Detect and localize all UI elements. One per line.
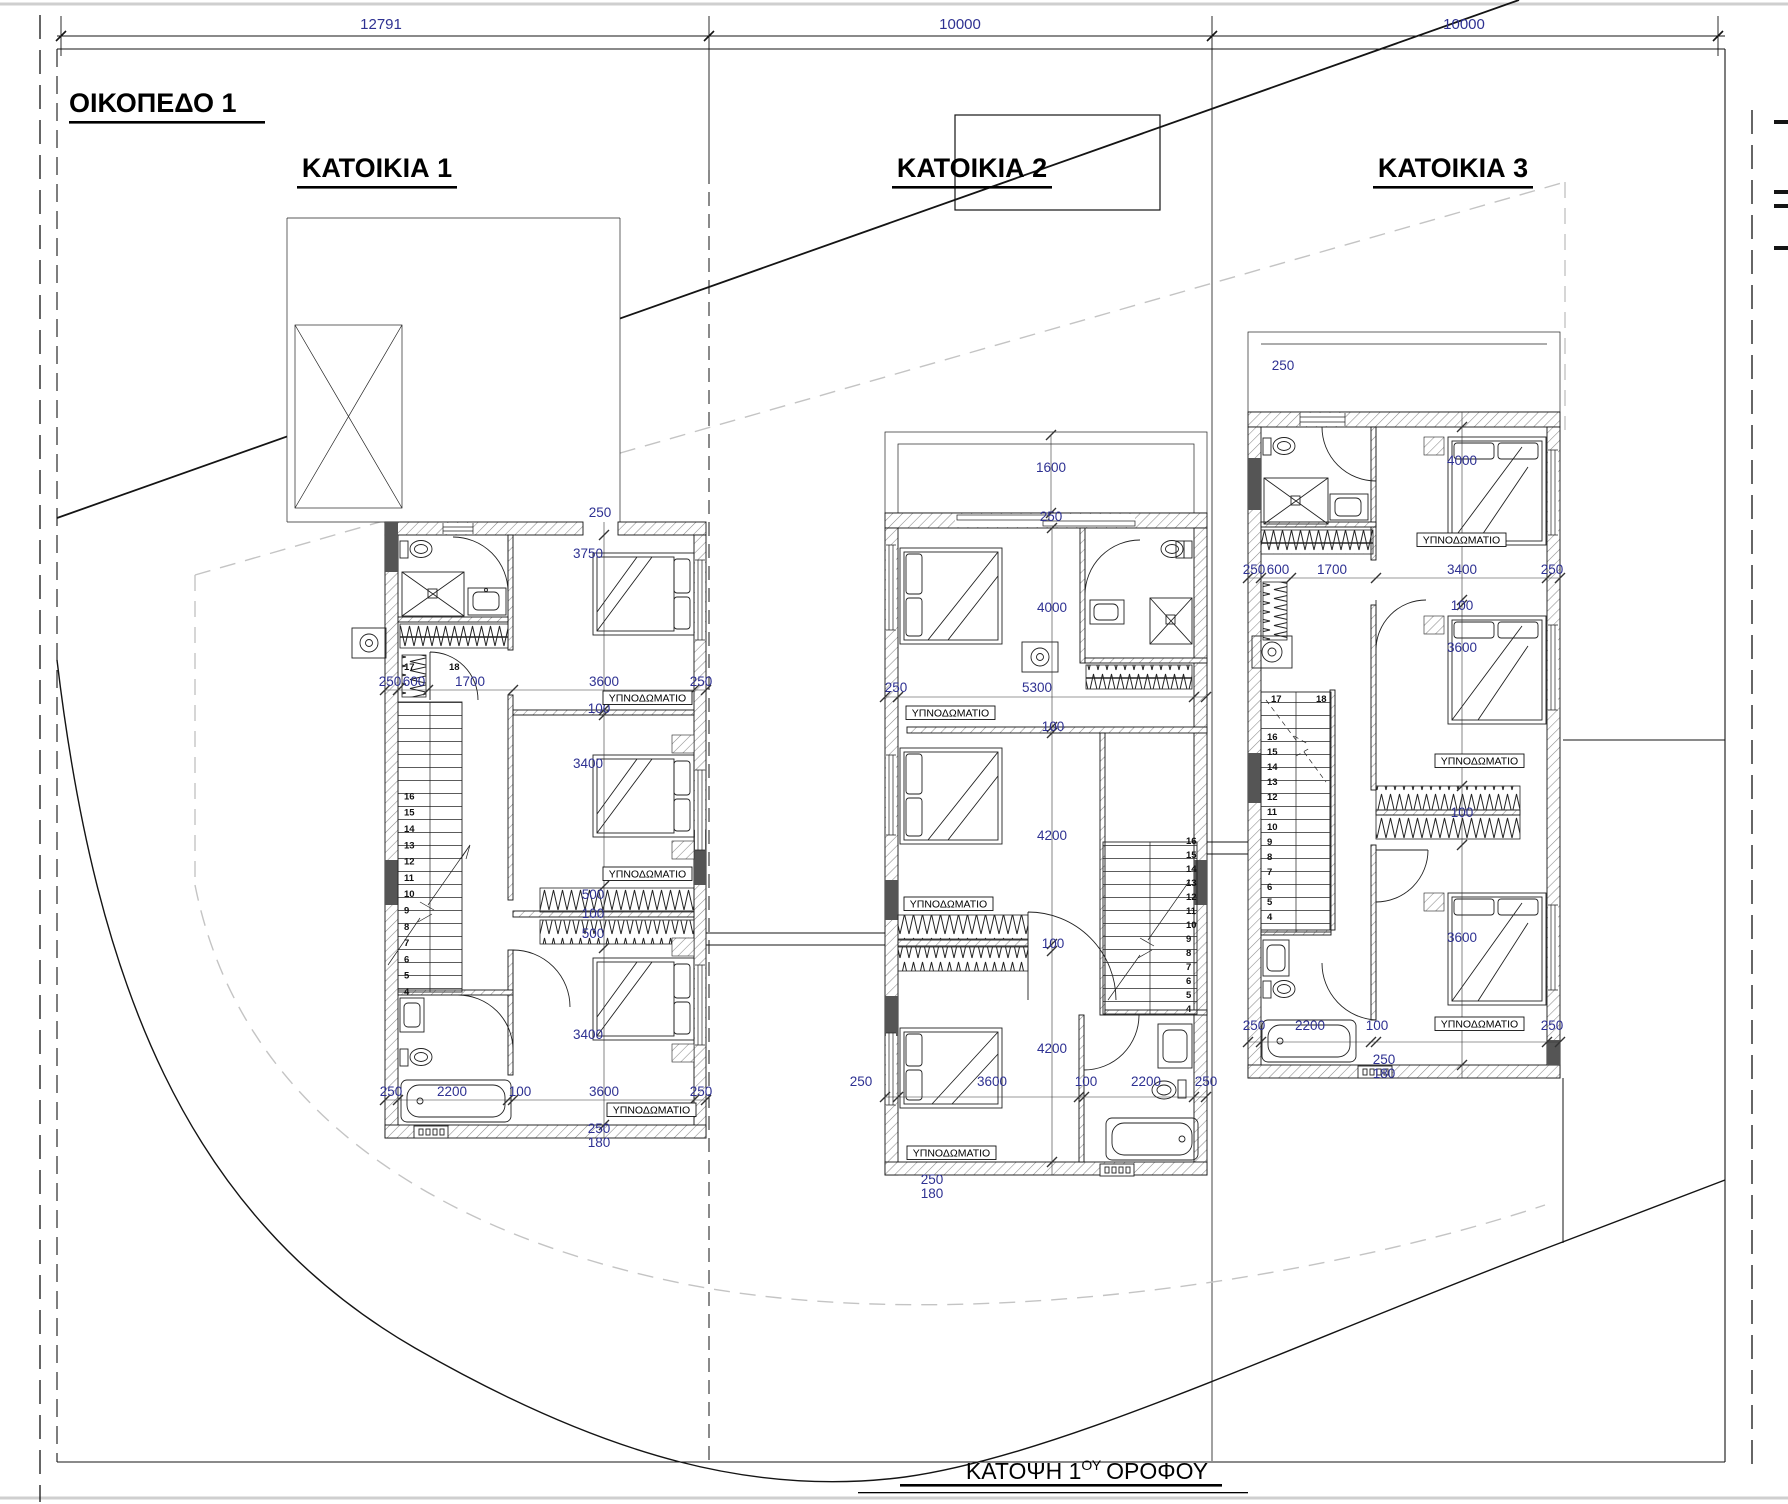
dimension-label: 250 <box>1040 509 1063 524</box>
dimension-label: 100 <box>1366 1018 1389 1033</box>
dimension-label: 250 <box>690 674 713 689</box>
closet <box>1263 582 1287 640</box>
stair-step-number: 9 <box>404 906 409 917</box>
room-label: ΥΠΝΟΔΩΜΑΤΙΟ <box>1423 535 1500 547</box>
dimension-label: 500 <box>582 887 605 902</box>
stair-step-number: 5 <box>404 971 410 982</box>
dimension-label: 1700 <box>1317 562 1347 577</box>
top-dimension-line <box>56 16 1725 170</box>
stair-step-number: 6 <box>1267 882 1272 893</box>
stair-step-number: 11 <box>404 873 415 884</box>
stair-step-number: 15 <box>1267 747 1278 758</box>
dimension-label: 18 <box>449 662 460 673</box>
floor-plan-drawing: 1279110000100002506001700360025025037501… <box>0 0 1788 1504</box>
caption-suffix: ΟΡΟΦΟΥ <box>1106 1458 1208 1484</box>
radiator <box>1086 665 1192 689</box>
vent-grid <box>414 1126 448 1138</box>
room-label: ΥΠΝΟΔΩΜΑΤΙΟ <box>913 1148 990 1160</box>
dimension-label: 3600 <box>977 1074 1007 1089</box>
house-1-plan <box>287 218 711 1138</box>
dimension-label: 4000 <box>1037 600 1067 615</box>
dimension-label: 3400 <box>573 756 603 771</box>
room-label: ΥΠΝΟΔΩΜΑΤΙΟ <box>910 899 987 911</box>
stair-step-number: 15 <box>404 808 415 819</box>
dimension-label: 600 <box>1267 562 1290 577</box>
stair-step-number: 9 <box>1267 837 1272 848</box>
wardrobe <box>898 947 1028 971</box>
stair-step-number: 13 <box>404 840 415 851</box>
stair-step-number: 12 <box>1186 892 1197 903</box>
stair-step-number: 10 <box>1267 822 1278 833</box>
house-3-title: ΚΑΤΟΙΚΙΑ 3 <box>1378 153 1528 183</box>
titles: ΟΙΚΟΠΕΔΟ 1 ΚΑΤΟΙΚΙΑ 1 ΚΑΤΟΙΚΙΑ 2 ΚΑΤΟΙΚΙ… <box>69 88 1533 189</box>
dimension-label: 250 <box>690 1084 713 1099</box>
stair-step-number: 11 <box>1186 906 1197 917</box>
stair-step-number: 12 <box>404 857 415 868</box>
stair-step-number: 15 <box>1186 850 1197 861</box>
stair-step-number: 16 <box>1267 732 1278 743</box>
room-label: ΥΠΝΟΔΩΜΑΤΙΟ <box>912 708 989 720</box>
dimension-label: 100 <box>1451 598 1474 613</box>
dimension-label: 10000 <box>939 16 981 33</box>
washing-machine <box>352 628 386 658</box>
dimension-label: 3600 <box>1447 640 1477 655</box>
radiator <box>1261 530 1373 554</box>
dimension-label: 18 <box>1316 694 1327 705</box>
stair-step-number: 8 <box>1267 852 1272 863</box>
dimension-label: 3600 <box>589 674 619 689</box>
dimension-label: 2200 <box>1131 1074 1161 1089</box>
stair-step-number: 7 <box>1267 867 1272 878</box>
stair-step-number: 14 <box>1186 864 1197 875</box>
house-2-plan <box>880 430 1211 1176</box>
staircase <box>1103 842 1197 1014</box>
stair-step-number: 13 <box>1267 777 1278 788</box>
dimension-label: 250 <box>379 674 402 689</box>
stair-step-number: 4 <box>1186 1004 1192 1015</box>
dimension-label: 3600 <box>589 1084 619 1099</box>
dimension-label: 12791 <box>360 16 402 33</box>
wardrobe <box>540 920 694 944</box>
dimension-label: 250 <box>589 505 612 520</box>
wardrobe <box>1376 815 1520 839</box>
dimension-label: 180 <box>1373 1066 1396 1081</box>
floor-plan-page: 1279110000100002506001700360025025037501… <box>0 0 1788 1504</box>
stair-step-number: 7 <box>1186 962 1191 973</box>
stair-step-number: 8 <box>404 922 409 933</box>
dimension-label: 2200 <box>1295 1018 1325 1033</box>
dimension-label: 100 <box>509 1084 532 1099</box>
caption-superscript: ΟΥ <box>1081 1457 1101 1473</box>
stair-step-number: 14 <box>404 824 415 835</box>
stair-step-number: 7 <box>404 938 409 949</box>
dimension-label: 250 <box>1373 1052 1396 1067</box>
dimension-label: 180 <box>921 1186 944 1201</box>
house-2-title: ΚΑΤΟΙΚΙΑ 2 <box>897 153 1047 183</box>
dimension-label: 3400 <box>1447 562 1477 577</box>
dimension-label: 180 <box>588 1135 611 1150</box>
room-label: ΥΠΝΟΔΩΜΑΤΙΟ <box>1441 756 1518 768</box>
dimension-label: 4200 <box>1037 828 1067 843</box>
wardrobe <box>1376 786 1520 810</box>
stair-step-number: 6 <box>1186 976 1191 987</box>
dimension-label: 600 <box>403 674 426 689</box>
caption-prefix: ΚΑΤΟΨΗ 1 <box>966 1458 1082 1484</box>
dimension-label: 3750 <box>573 546 603 561</box>
dimension-label: 3600 <box>1447 930 1477 945</box>
dimension-label: 100 <box>1042 936 1065 951</box>
dimension-label: 250 <box>885 680 908 695</box>
stair-step-number: 10 <box>404 889 415 900</box>
wardrobe <box>540 888 694 912</box>
svg-text:ΚΑΤΟΨΗ 1ΟΥΟΡΟΦΟΥ: ΚΑΤΟΨΗ 1ΟΥΟΡΟΦΟΥ <box>966 1457 1208 1484</box>
dimension-label: 250 <box>921 1172 944 1187</box>
stair-step-number: 11 <box>1267 807 1278 818</box>
dimension-label: 1600 <box>1036 460 1066 475</box>
room-label: ΥΠΝΟΔΩΜΑΤΙΟ <box>1441 1019 1518 1031</box>
dimension-label: 500 <box>582 926 605 941</box>
dimension-label: 250 <box>588 1121 611 1136</box>
stair-step-number: 4 <box>1267 912 1273 923</box>
radiator <box>400 624 508 648</box>
room-label: ΥΠΝΟΔΩΜΑΤΙΟ <box>609 693 686 705</box>
stair-step-number: 8 <box>1186 948 1191 959</box>
dimension-label: 250 <box>1243 562 1266 577</box>
house-3-plan <box>1243 332 1565 1078</box>
dimension-label: 100 <box>1451 805 1474 820</box>
dimension-label: 3400 <box>573 1027 603 1042</box>
dimension-label: 250 <box>1272 358 1295 373</box>
dimension-label: 100 <box>1042 719 1065 734</box>
dimension-label: 100 <box>1075 1074 1098 1089</box>
dimension-label: 5300 <box>1022 680 1052 695</box>
edge-artifacts <box>1774 122 1788 248</box>
room-label: ΥΠΝΟΔΩΜΑΤΙΟ <box>609 869 686 881</box>
dimension-label: 10000 <box>1443 16 1485 33</box>
house-1-title: ΚΑΤΟΙΚΙΑ 1 <box>302 153 452 183</box>
dimension-label: 17 <box>404 662 415 673</box>
dimension-label: 250 <box>1195 1074 1218 1089</box>
stair-step-number: 14 <box>1267 762 1278 773</box>
wardrobe <box>898 915 1028 939</box>
stair-step-number: 4 <box>404 987 410 998</box>
dimension-label: 1700 <box>455 674 485 689</box>
stair-step-number: 9 <box>1186 934 1191 945</box>
dimension-label: 17 <box>1271 694 1282 705</box>
stair-step-number: 12 <box>1267 792 1278 803</box>
dimension-label: 100 <box>582 906 605 921</box>
staircase <box>388 702 470 992</box>
dimension-label: 250 <box>1243 1018 1266 1033</box>
stair-step-number: 16 <box>1186 836 1197 847</box>
room-label: ΥΠΝΟΔΩΜΑΤΙΟ <box>613 1105 690 1117</box>
stair-step-number: 13 <box>1186 878 1197 889</box>
vent-grid <box>1100 1164 1134 1176</box>
stair-step-number: 5 <box>1267 897 1273 908</box>
dimension-label: 250 <box>1541 562 1564 577</box>
plot-title: ΟΙΚΟΠΕΔΟ 1 <box>69 88 236 118</box>
stair-step-number: 10 <box>1186 920 1197 931</box>
stair-step-number: 6 <box>404 954 409 965</box>
dimension-label: 250 <box>380 1084 403 1099</box>
dimension-label: 250 <box>1541 1018 1564 1033</box>
dimension-label: 2200 <box>437 1084 467 1099</box>
dimension-label: 4200 <box>1037 1041 1067 1056</box>
stair-step-number: 16 <box>404 791 415 802</box>
stair-step-number: 5 <box>1186 990 1192 1001</box>
dimension-label: 250 <box>850 1074 873 1089</box>
dimension-label: 4000 <box>1447 453 1477 468</box>
